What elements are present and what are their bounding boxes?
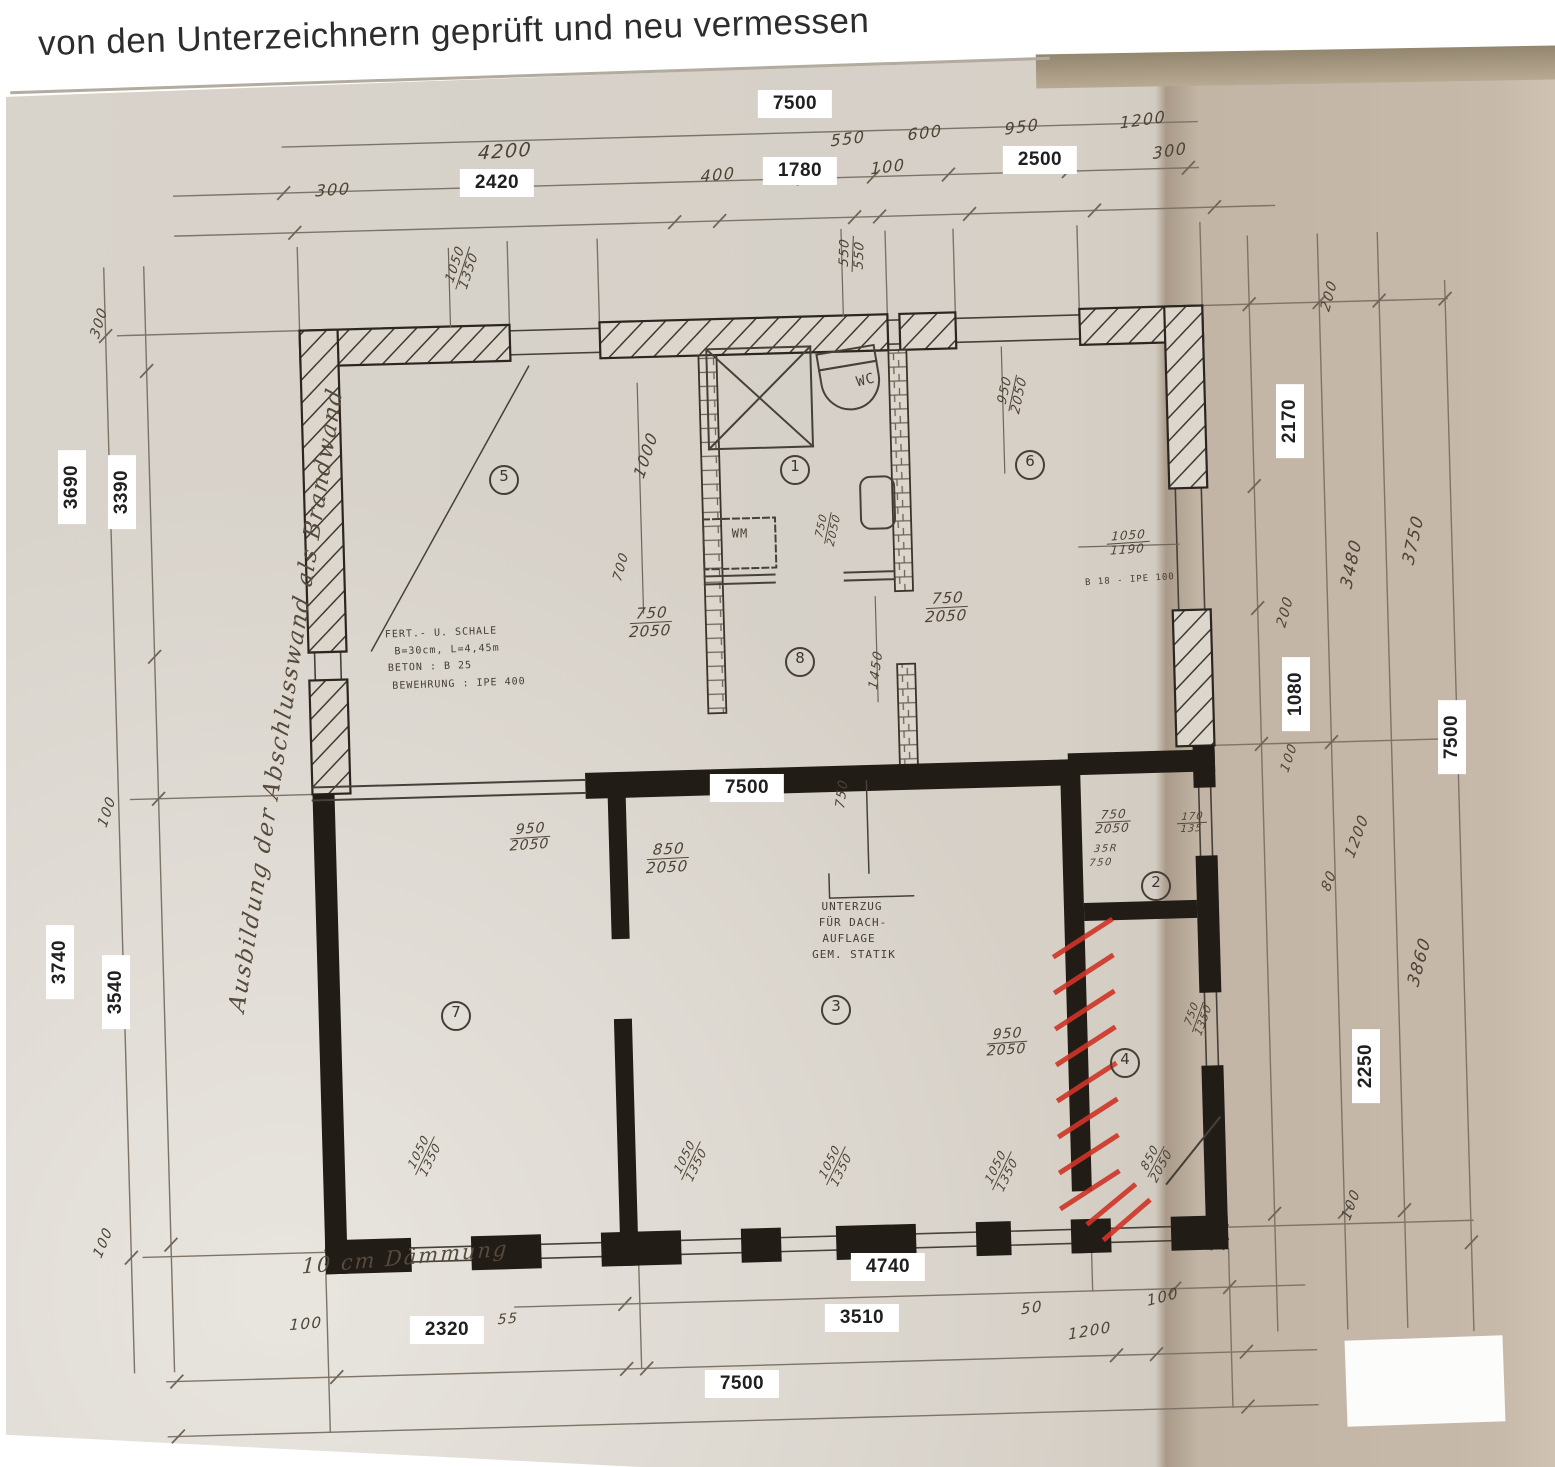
dimension-fraction-label: 170135	[1176, 811, 1208, 836]
dimension-box-label: 7500	[705, 1370, 779, 1398]
room-number: 6	[1015, 450, 1045, 480]
dimension-box-label: 2420	[460, 169, 534, 197]
dimension-box-label: 2170	[1276, 384, 1304, 458]
dimension-label: 55	[497, 1311, 519, 1328]
dimension-fraction-label: 10501190	[1106, 528, 1150, 559]
dimension-box-label: 7500	[1438, 700, 1466, 774]
dimension-box-label: 3740	[46, 925, 74, 999]
dimension-fraction-label: 9502050	[986, 1026, 1028, 1061]
room-number: 1	[780, 455, 810, 485]
dimension-fraction-label: 8502050	[645, 840, 690, 876]
dimension-box-label: 1780	[763, 157, 837, 185]
dimension-box-label: 4740	[851, 1253, 925, 1281]
dimension-fraction-label: 7502050	[1095, 807, 1132, 836]
annotation-text: FÜR DACH-	[819, 917, 888, 929]
dimension-label: 50	[1021, 1298, 1043, 1318]
room-number: 5	[489, 465, 519, 495]
dimension-fraction-label: 7502050	[628, 604, 673, 640]
white-masking-patch	[1345, 1335, 1506, 1426]
annotation-text: UNTERZUG	[822, 901, 883, 913]
room-number: 7	[441, 1001, 471, 1031]
dimension-label: 400	[700, 164, 735, 185]
dimension-label: 100	[870, 156, 905, 178]
dimension-box-label: 2250	[1352, 1029, 1380, 1103]
scan-photo-area	[6, 0, 1555, 1467]
page-heading: von den Unterzeichnern geprüft und neu v…	[38, 0, 1049, 64]
dimension-label: 300	[315, 180, 351, 200]
dimension-box-label: 3690	[58, 450, 86, 524]
annotation-text: AUFLAGE	[822, 933, 875, 945]
dimension-fraction-label: 550550	[838, 234, 869, 275]
dimension-label: 35R	[1093, 843, 1118, 855]
dimension-box-label: 2320	[410, 1316, 484, 1344]
dimension-label: 100	[289, 1314, 323, 1334]
room-number: 3	[821, 995, 851, 1025]
dimension-label: 750	[1089, 857, 1114, 869]
room-number: 4	[1110, 1048, 1140, 1078]
dimension-box-label: 2500	[1003, 146, 1077, 174]
dimension-box-label: 3510	[825, 1304, 899, 1332]
dimension-box-label: 7500	[758, 90, 832, 118]
dimension-label: 4200	[477, 140, 533, 165]
dimension-box-label: 3390	[108, 455, 136, 529]
dimension-box-label: 1080	[1282, 657, 1310, 731]
room-number: 2	[1141, 871, 1171, 901]
dimension-label: 550	[830, 128, 865, 150]
room-number: 8	[785, 647, 815, 677]
dimension-label: 600	[907, 122, 942, 144]
dimension-box-label: 3540	[102, 955, 130, 1029]
dimension-fraction-label: 9502050	[509, 821, 551, 856]
dimension-box-label: 7500	[710, 774, 784, 802]
annotation-text: GEM. STATIK	[812, 949, 896, 961]
scanned-floorplan-page: von den Unterzeichnern geprüft und neu v…	[0, 0, 1555, 1467]
dimension-fraction-label: 7502050	[924, 589, 969, 625]
annotation-text: WM	[732, 527, 748, 540]
